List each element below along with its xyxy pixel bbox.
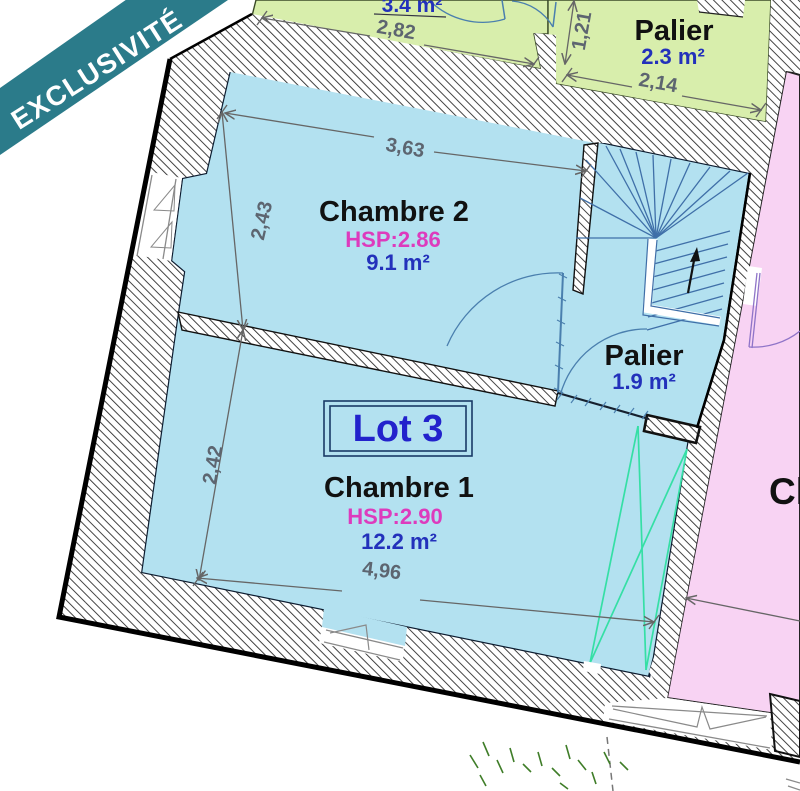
svg-text:Lot 3: Lot 3: [353, 408, 444, 450]
svg-text:9.1 m²: 9.1 m²: [366, 250, 430, 275]
svg-text:Cha: Cha: [769, 471, 800, 512]
svg-text:Chambre 2: Chambre 2: [319, 196, 469, 228]
svg-text:4,96: 4,96: [361, 558, 402, 585]
svg-text:2.3 m²: 2.3 m²: [641, 44, 705, 69]
svg-text:Palier: Palier: [635, 15, 714, 47]
svg-text:12.2 m²: 12.2 m²: [361, 529, 437, 554]
svg-text:HSP:2.86: HSP:2.86: [345, 227, 440, 252]
svg-text:Palier: Palier: [605, 340, 684, 372]
svg-text:Chambre 1: Chambre 1: [324, 472, 474, 504]
svg-text:1.9 m²: 1.9 m²: [612, 369, 676, 394]
svg-text:HSP:2.90: HSP:2.90: [347, 504, 442, 529]
